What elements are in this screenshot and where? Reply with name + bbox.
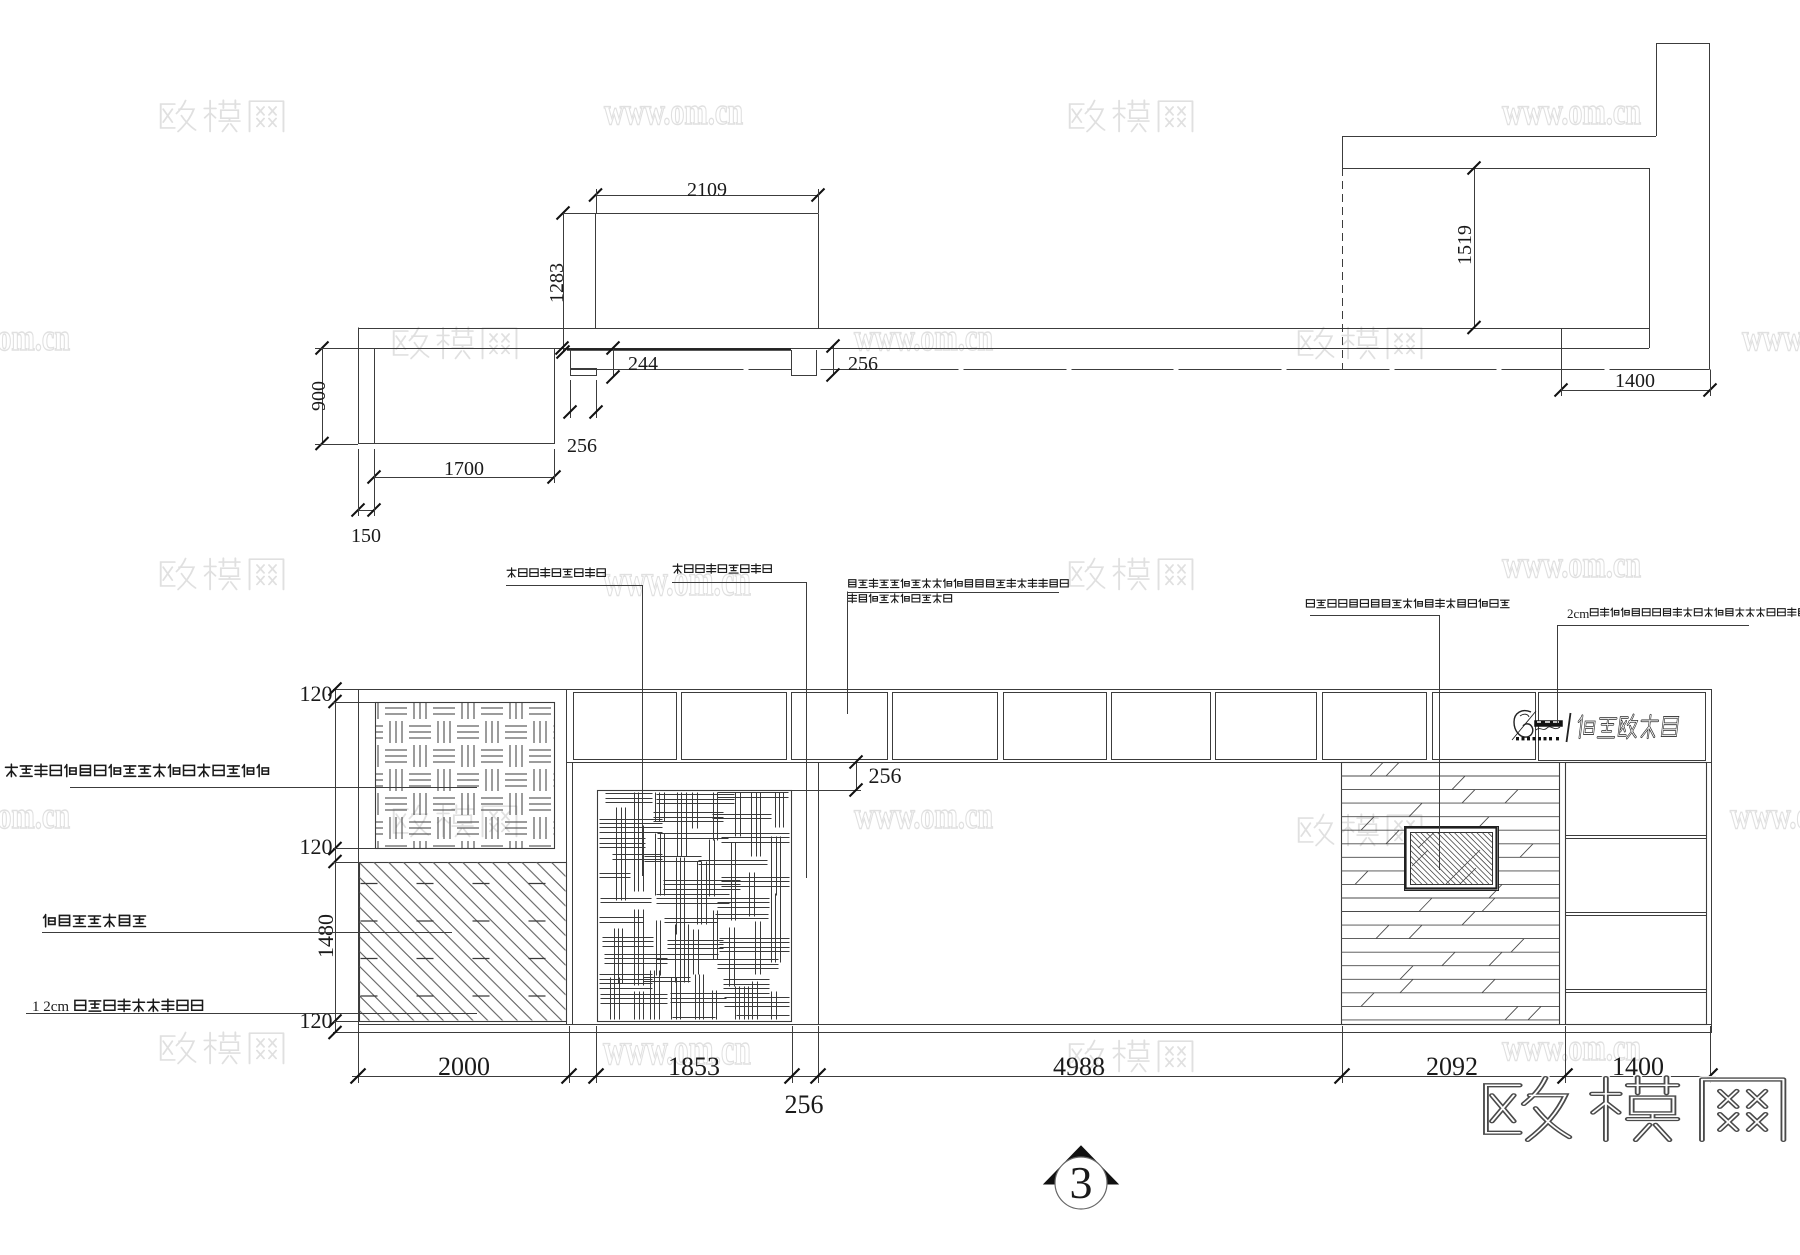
svg-text:900: 900 <box>308 381 330 411</box>
svg-text:150: 150 <box>351 525 381 547</box>
svg-text:2109: 2109 <box>687 179 727 201</box>
svg-text:3: 3 <box>1070 1157 1093 1208</box>
svg-text:www.om.cn: www.om.cn <box>1502 544 1641 586</box>
svg-text:www.om.cn: www.om.cn <box>1502 91 1641 133</box>
svg-text:1700: 1700 <box>444 458 484 480</box>
svg-text:120: 120 <box>300 834 333 859</box>
svg-text:256: 256 <box>848 353 878 375</box>
svg-text:2000: 2000 <box>438 1052 490 1081</box>
svg-text:256: 256 <box>785 1090 824 1119</box>
svg-text:www.om.cn: www.om.cn <box>854 795 993 837</box>
svg-text:1 2cm: 1 2cm <box>32 999 69 1015</box>
svg-text:www.om.cn: www.om.cn <box>0 317 70 359</box>
svg-text:1480: 1480 <box>313 914 338 958</box>
svg-text:120: 120 <box>300 1008 333 1033</box>
svg-text:1400: 1400 <box>1615 370 1655 392</box>
svg-text:120: 120 <box>300 681 333 706</box>
svg-text:www.om.cn: www.om.cn <box>604 91 743 133</box>
svg-text:1283: 1283 <box>546 263 568 303</box>
svg-text:256: 256 <box>567 435 597 457</box>
svg-text:www.om.cn: www.om.cn <box>1730 795 1800 837</box>
svg-text:244: 244 <box>628 353 658 375</box>
svg-text:2092: 2092 <box>1426 1052 1478 1081</box>
svg-text:1519: 1519 <box>1454 225 1476 265</box>
svg-text:1853: 1853 <box>668 1052 720 1081</box>
svg-text:www.om.cn: www.om.cn <box>0 795 70 837</box>
svg-text:www.om.cn: www.om.cn <box>1742 317 1800 359</box>
svg-text:256: 256 <box>869 763 902 788</box>
svg-text:2cm: 2cm <box>1567 606 1589 621</box>
svg-text:www.om.cn: www.om.cn <box>603 556 751 605</box>
svg-text:4988: 4988 <box>1053 1052 1105 1081</box>
